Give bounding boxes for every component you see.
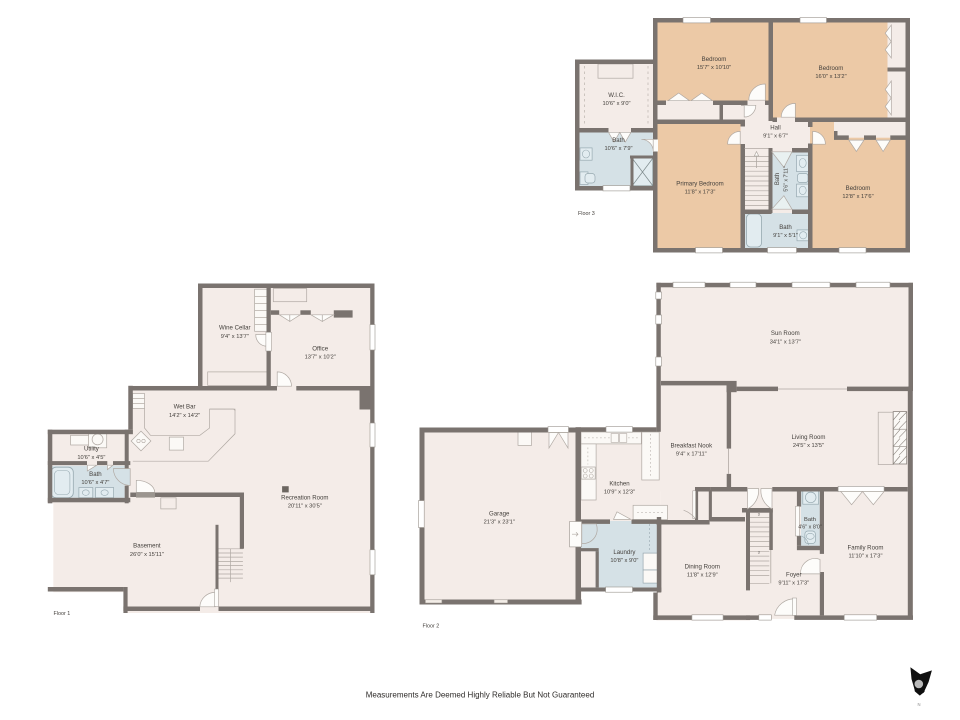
svg-text:34'1" x 13'7": 34'1" x 13'7"	[770, 339, 801, 345]
svg-text:9'1" x 5'1": 9'1" x 5'1"	[773, 233, 798, 239]
svg-text:Laundry: Laundry	[613, 549, 636, 556]
svg-text:14'2" x 14'2": 14'2" x 14'2"	[169, 413, 200, 419]
svg-text:9'4" x 17'11": 9'4" x 17'11"	[676, 452, 707, 458]
svg-text:10'6" x 4'5": 10'6" x 4'5"	[77, 455, 105, 461]
svg-text:16'0" x 13'2": 16'0" x 13'2"	[815, 74, 846, 80]
svg-text:Hall: Hall	[770, 125, 781, 132]
svg-text:Recreation Room: Recreation Room	[281, 495, 328, 502]
svg-text:Floor 2: Floor 2	[423, 624, 440, 630]
svg-text:Office: Office	[312, 345, 328, 352]
svg-text:Measurements Are Deemed Highly: Measurements Are Deemed Highly Reliable …	[366, 691, 595, 700]
svg-text:15'7" x 10'10": 15'7" x 10'10"	[697, 65, 731, 71]
svg-text:24'5" x 13'5": 24'5" x 13'5"	[793, 443, 824, 449]
svg-text:20'11" x 30'5": 20'11" x 30'5"	[288, 504, 322, 510]
svg-text:Floor 3: Floor 3	[578, 211, 595, 217]
svg-text:Bedroom: Bedroom	[702, 56, 727, 63]
svg-text:Wet Bar: Wet Bar	[174, 404, 196, 411]
svg-text:W.I.C.: W.I.C.	[608, 92, 625, 99]
svg-text:26'0" x 15'11": 26'0" x 15'11"	[130, 552, 164, 558]
svg-text:9'4" x 13'7": 9'4" x 13'7"	[221, 334, 249, 340]
svg-text:10'9" x 12'3": 10'9" x 12'3"	[604, 490, 635, 496]
svg-text:10'6" x 4'7": 10'6" x 4'7"	[81, 480, 109, 486]
svg-text:9'11" x 17'3": 9'11" x 17'3"	[778, 581, 809, 587]
svg-text:11'10" x 17'3": 11'10" x 17'3"	[849, 554, 883, 560]
svg-text:4'6" x 8'0": 4'6" x 8'0"	[798, 524, 822, 530]
svg-text:Wine Cellar: Wine Cellar	[219, 325, 251, 332]
svg-text:9'1" x 6'7": 9'1" x 6'7"	[763, 134, 788, 140]
svg-text:Kitchen: Kitchen	[609, 480, 629, 487]
svg-text:Bath: Bath	[779, 224, 792, 231]
svg-text:Bath: Bath	[775, 173, 781, 185]
svg-text:13'7" x 10'2": 13'7" x 10'2"	[305, 355, 336, 361]
svg-text:10'8" x 9'0": 10'8" x 9'0"	[610, 558, 638, 564]
svg-text:12'8" x 17'6": 12'8" x 17'6"	[842, 194, 873, 200]
svg-text:3: 3	[758, 513, 760, 517]
svg-text:Bath: Bath	[89, 471, 102, 478]
svg-text:Family Room: Family Room	[848, 545, 884, 552]
svg-text:11'8" x 12'9": 11'8" x 12'9"	[687, 573, 718, 579]
svg-text:3: 3	[758, 551, 760, 555]
svg-text:Bedroom: Bedroom	[846, 185, 871, 192]
svg-text:21'3" x 23'1": 21'3" x 23'1"	[484, 520, 515, 526]
svg-text:Basement: Basement	[133, 543, 161, 550]
svg-text:Living Room: Living Room	[792, 434, 826, 441]
svg-text:Breakfast Nook: Breakfast Nook	[670, 442, 713, 449]
svg-text:Primary Bedroom: Primary Bedroom	[676, 181, 723, 188]
svg-text:Floor 1: Floor 1	[54, 611, 71, 617]
svg-text:Utility: Utility	[84, 446, 100, 453]
svg-text:10'6" x 9'0": 10'6" x 9'0"	[602, 101, 630, 107]
svg-text:Dining Room: Dining Room	[685, 564, 720, 571]
svg-text:Bedroom: Bedroom	[819, 65, 844, 72]
svg-text:Bath: Bath	[804, 517, 816, 523]
svg-text:5'6" x 7'11": 5'6" x 7'11"	[783, 166, 789, 191]
svg-text:Foyer: Foyer	[786, 571, 802, 578]
svg-text:11'8" x 17'3": 11'8" x 17'3"	[685, 190, 716, 196]
svg-text:10'6" x 7'9": 10'6" x 7'9"	[604, 146, 632, 152]
svg-text:N: N	[917, 702, 920, 707]
svg-text:Garage: Garage	[489, 510, 510, 517]
svg-text:Sun Room: Sun Room	[771, 330, 800, 337]
svg-text:Bath: Bath	[612, 137, 625, 144]
